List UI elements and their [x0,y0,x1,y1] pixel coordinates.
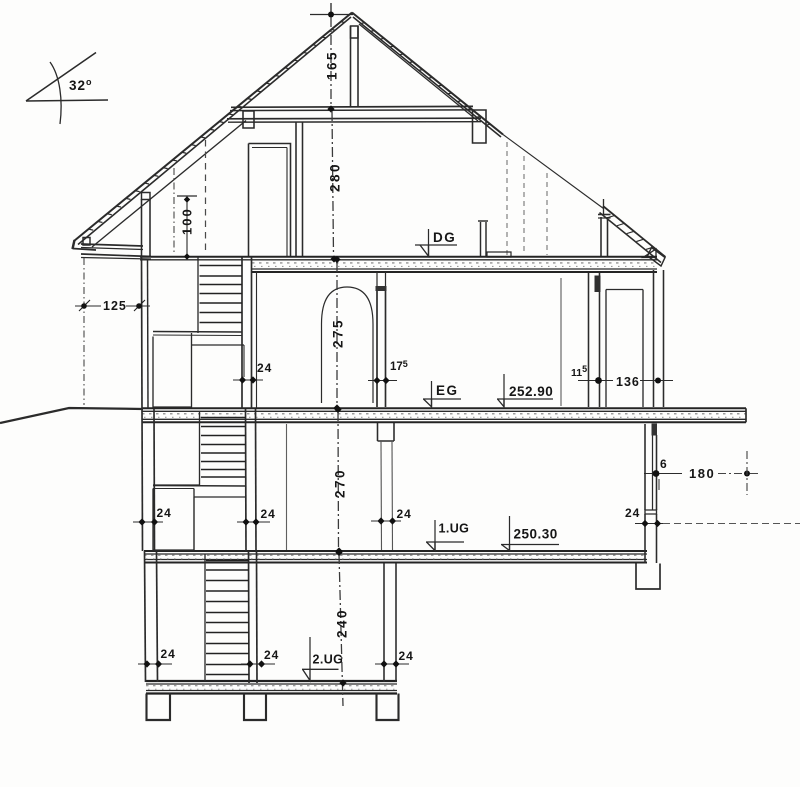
svg-text:240: 240 [335,608,350,638]
svg-text:180: 180 [689,466,715,481]
svg-text:252.90: 252.90 [509,384,553,399]
svg-text:1.UG: 1.UG [439,522,470,536]
svg-text:24: 24 [161,647,176,661]
svg-text:6: 6 [660,457,668,471]
svg-text:DG: DG [433,230,456,245]
svg-text:165: 165 [325,50,340,80]
svg-text:270: 270 [333,468,348,498]
svg-text:250.30: 250.30 [514,527,558,542]
svg-text:125: 125 [103,299,127,313]
svg-text:100: 100 [180,207,195,235]
svg-text:24: 24 [157,506,172,520]
svg-text:24: 24 [257,361,272,375]
svg-text:24: 24 [399,649,414,663]
svg-text:275: 275 [331,318,346,348]
svg-text:24: 24 [625,506,640,520]
svg-text:EG: EG [436,383,459,398]
svg-text:136: 136 [616,375,640,389]
svg-text:24: 24 [397,507,412,521]
svg-text:2.UG: 2.UG [313,653,344,667]
svg-text:24: 24 [261,507,276,521]
svg-text:280: 280 [328,162,343,192]
svg-text:24: 24 [264,648,279,662]
